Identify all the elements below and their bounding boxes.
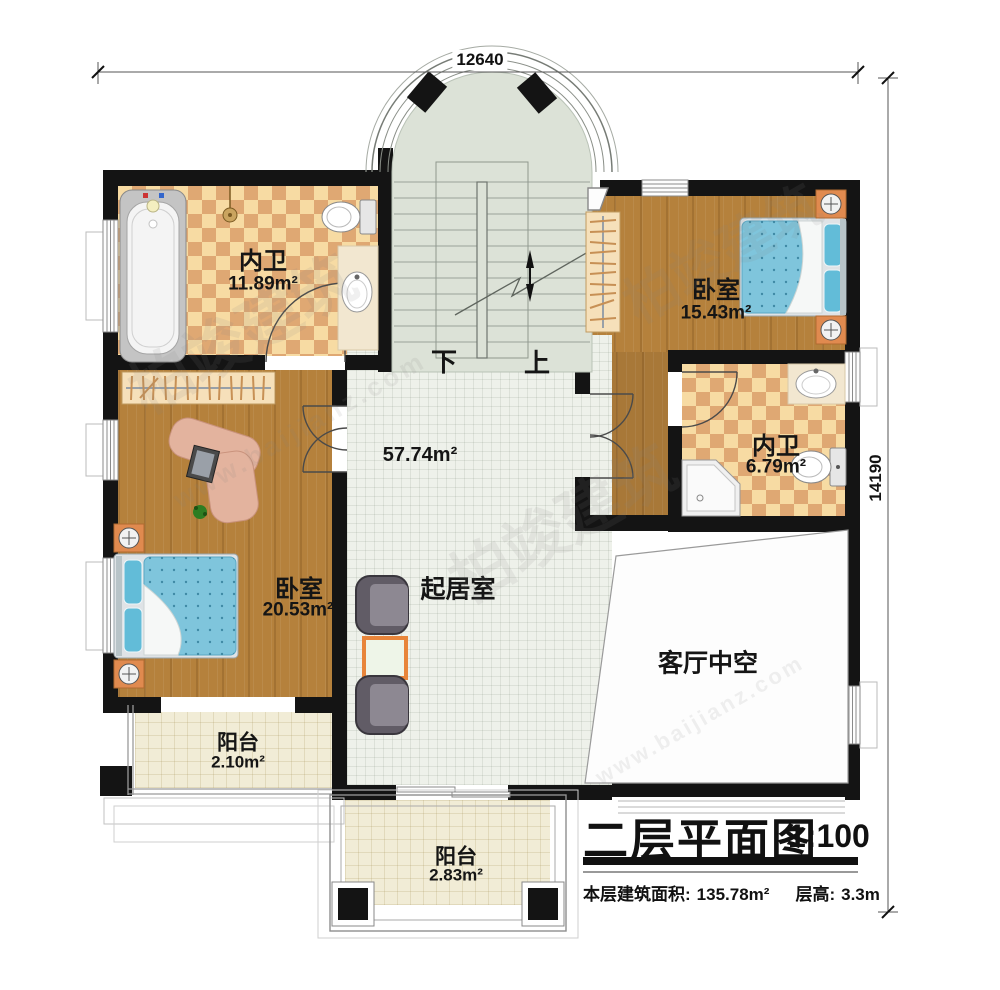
basin-right (788, 364, 845, 404)
nightstand-right-top (816, 190, 846, 218)
toilet-upper (322, 200, 376, 234)
room-label-bedroom-right: 卧室 (692, 279, 740, 303)
bathtub (120, 190, 186, 362)
dimension-right-value: 14190 (866, 450, 886, 505)
title-underline-thick (583, 857, 858, 865)
info-height-value: 3.3m (841, 885, 880, 904)
nightstand-right-bottom (816, 316, 846, 344)
room-area-bedroom-right: 15.43m² (681, 304, 752, 323)
room-label-bedroom-left: 卧室 (275, 578, 323, 602)
desk (165, 414, 265, 525)
dimension-top-value: 12640 (452, 50, 507, 70)
room-label-bath-upper: 内卫 (239, 250, 287, 274)
shower-corner (682, 460, 740, 516)
wardrobe-right (586, 212, 620, 332)
room-label-bath-right: 内卫 (752, 435, 800, 459)
room-area-bedroom-left: 20.53m² (263, 601, 334, 620)
room-area-balcony-bottom: 2.83m² (429, 867, 483, 884)
plan-scale: 1:100 (788, 818, 870, 855)
room-area-living: 57.74m² (383, 445, 458, 465)
room-area-bath-upper: 11.89m² (228, 275, 298, 294)
nightstand-left-top (114, 524, 144, 552)
terrace-steps-left (104, 798, 344, 842)
info-height-label: 层高: (795, 885, 835, 904)
stairwell (366, 46, 618, 372)
bed-right (740, 218, 846, 316)
info-area-value: 135.78m² (697, 885, 770, 904)
floor-plan-canvas: 内卫 11.89m² 卧室 15.43m² 内卫 6.79m² 卧室 20.53… (0, 0, 1000, 990)
room-label-living: 起居室 (420, 578, 495, 603)
ceiling-lamp (223, 186, 237, 222)
armchair-bottom (356, 676, 408, 734)
room-label-balcony-left: 阳台 (217, 733, 259, 754)
wardrobe-left (122, 372, 275, 404)
room-label-void: 客厅中空 (658, 652, 758, 677)
info-area-label: 本层建筑面积: (583, 885, 691, 904)
balcony-columns (332, 882, 564, 926)
room-label-balcony-bottom: 阳台 (435, 847, 477, 868)
armchair-top (356, 576, 408, 634)
stairs-up-label: 上 (524, 350, 550, 376)
room-area-balcony-left: 2.10m² (211, 754, 265, 771)
title-underline-thin (583, 871, 858, 873)
side-table (364, 638, 406, 678)
bed-left (114, 554, 238, 658)
basin-upper (338, 246, 378, 350)
stairs-down-label: 下 (431, 349, 457, 375)
plan-info-line: 本层建筑面积:135.78m²层高:3.3m (583, 880, 886, 905)
room-area-bath-right: 6.79m² (746, 458, 806, 477)
nightstand-left-bottom (114, 660, 144, 688)
